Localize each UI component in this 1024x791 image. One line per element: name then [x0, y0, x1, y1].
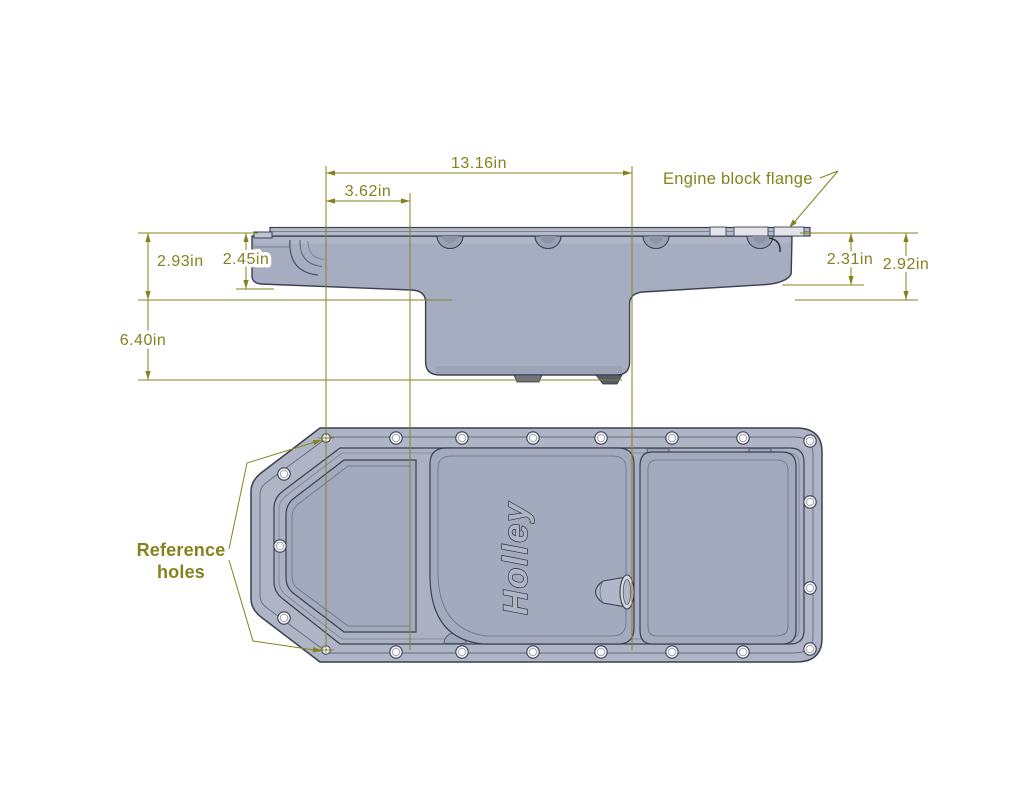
arrowhead: [243, 233, 248, 242]
bolt-hole-core: [668, 434, 675, 441]
bolt-hole-core: [458, 648, 465, 655]
dim-overall-length-text: 13.16in: [451, 155, 507, 172]
arrowhead: [145, 233, 150, 242]
bolt-hole-core: [276, 542, 283, 549]
reference-holes-label-line1: Reference: [137, 540, 226, 560]
dim-rear-depth-outer-text: 2.92in: [883, 256, 930, 273]
arrowhead: [145, 371, 150, 380]
bolt-hole-core: [392, 648, 399, 655]
flange-tab: [710, 227, 726, 236]
arrowhead: [145, 291, 150, 300]
rear-panel: [640, 452, 796, 644]
bolt-hole-core: [739, 648, 746, 655]
bolt-hole-core: [597, 648, 604, 655]
dim-rear-depth-inner: 2.31in: [827, 233, 874, 285]
drain-plug-collar-core: [623, 580, 631, 605]
dim-front-offset-text: 3.62in: [345, 183, 392, 200]
oil-pan-technical-drawing: Holley: [0, 0, 1024, 791]
dim-front-offset: 3.62in: [326, 183, 410, 204]
bolt-hole-core: [806, 437, 813, 444]
flange-tab: [774, 227, 804, 236]
bolt-hole-core: [806, 498, 813, 505]
dim-overall-length: 13.16in: [326, 155, 632, 176]
callout-engine-block-flange: Engine block flange: [663, 170, 838, 228]
bolt-hole-core: [280, 614, 287, 621]
arrowhead: [848, 233, 853, 242]
side-top-highlight: [254, 238, 790, 244]
bottom-view: Holley: [251, 428, 822, 662]
arrowhead: [903, 233, 908, 242]
side-pan-body: [252, 236, 792, 375]
bolt-hole-core: [529, 434, 536, 441]
engine-block-flange-label: Engine block flange: [663, 170, 813, 188]
dim-rear-depth-outer: 2.92in: [883, 233, 930, 300]
dim-front-depth-outer: 2.93in: [145, 233, 203, 380]
bolt-hole-core: [280, 470, 287, 477]
bolt-hole-core: [597, 434, 604, 441]
side-view: [252, 227, 810, 384]
side-sump-shadow: [436, 366, 622, 374]
arrowhead: [903, 291, 908, 300]
arrowhead: [848, 276, 853, 285]
bolt-hole-core: [668, 648, 675, 655]
bolt-hole-core: [458, 434, 465, 441]
flange-tab: [734, 227, 768, 236]
sump-bottom-pad: [514, 375, 542, 382]
bolt-hole-core: [392, 434, 399, 441]
dim-overall-depth: 6.40in: [120, 332, 167, 380]
reference-holes-label-line2: holes: [157, 562, 205, 582]
arrowhead: [326, 198, 335, 203]
bolt-hole-core: [806, 645, 813, 652]
arrowhead: [243, 280, 248, 289]
arrowhead: [401, 198, 410, 203]
bolt-hole-core: [529, 648, 536, 655]
dim-overall-depth-text: 6.40in: [120, 332, 167, 349]
bolt-hole-core: [739, 434, 746, 441]
dim-front-depth-inner-text: 2.45in: [223, 251, 270, 268]
bolt-hole-core: [806, 584, 813, 591]
drawing-canvas: Holley: [0, 0, 1024, 791]
arrowhead: [623, 170, 632, 175]
dim-rear-depth-inner-text: 2.31in: [827, 251, 874, 268]
arrowhead: [326, 170, 335, 175]
dim-front-depth-outer-text: 2.93in: [157, 253, 204, 270]
holley-logo: Holley: [497, 501, 535, 615]
